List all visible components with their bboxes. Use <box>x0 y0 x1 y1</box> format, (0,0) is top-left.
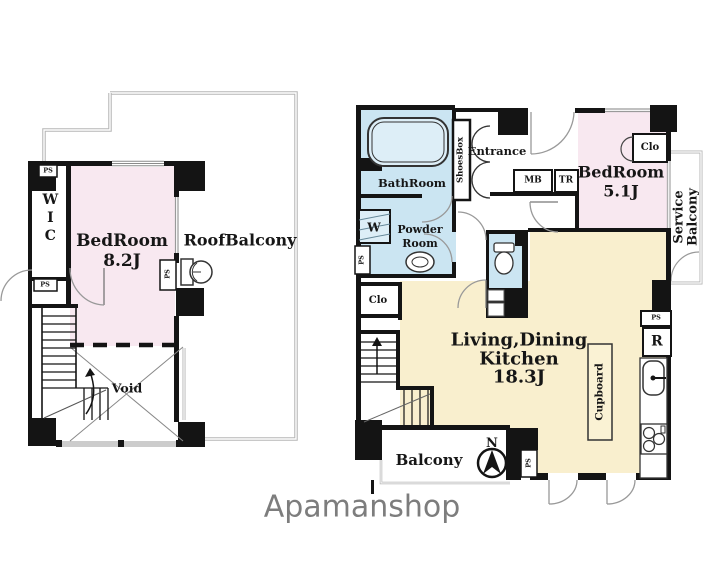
service-balcony-label: Service Balcony <box>672 188 699 246</box>
ldk-size-label: 18.3J <box>493 369 545 388</box>
shoesbox-label: ShoesBox <box>457 137 466 183</box>
void-label: Void <box>112 381 142 394</box>
ps-label-upper-mid: PS <box>40 282 50 289</box>
ps-label-upper-top: PS <box>43 168 53 175</box>
ps-label-main-left: PS <box>359 255 366 265</box>
floorplan-page: PS WIC PS BedRoom 8.2J RoofBalcony PS Vo… <box>0 0 720 577</box>
powder-room-line1: Powder <box>397 224 442 236</box>
main-bedroom-name: BedRoom <box>578 165 664 182</box>
apamanshop-logo: Apamanshop <box>264 490 461 525</box>
bathroom-label: BathRoom <box>378 177 446 189</box>
upper-bedroom-name: BedRoom <box>76 233 168 251</box>
cupboard-label: Cupboard <box>594 363 605 420</box>
closet-label-bedroom: Clo <box>641 143 659 154</box>
compass-north-label: N <box>486 437 498 451</box>
wic-room-label: WIC <box>43 192 58 246</box>
tr-label: TR <box>559 176 573 185</box>
ps-label-balcony: PS <box>526 458 533 468</box>
ps-label-kitchen: PS <box>651 315 661 322</box>
balcony-label: Balcony <box>396 453 463 469</box>
roof-balcony-label: RoofBalcony <box>184 233 297 250</box>
mb-label: MB <box>524 176 542 185</box>
main-floor-stairs <box>361 334 430 425</box>
service-balcony-line2: Balcony <box>686 188 700 246</box>
washer-label: W <box>367 222 380 235</box>
entrance-label: Entrance <box>468 145 527 157</box>
main-bedroom-size: 5.1J <box>603 184 638 201</box>
upper-bedroom-size: 8.2J <box>103 253 141 271</box>
service-balcony-line1: Service <box>672 188 686 246</box>
closet-label-hall: Clo <box>369 296 387 307</box>
ps-label-upper-right: PS <box>165 269 172 279</box>
fridge-label: R <box>651 335 663 350</box>
powder-room-line2: Room <box>402 238 437 250</box>
